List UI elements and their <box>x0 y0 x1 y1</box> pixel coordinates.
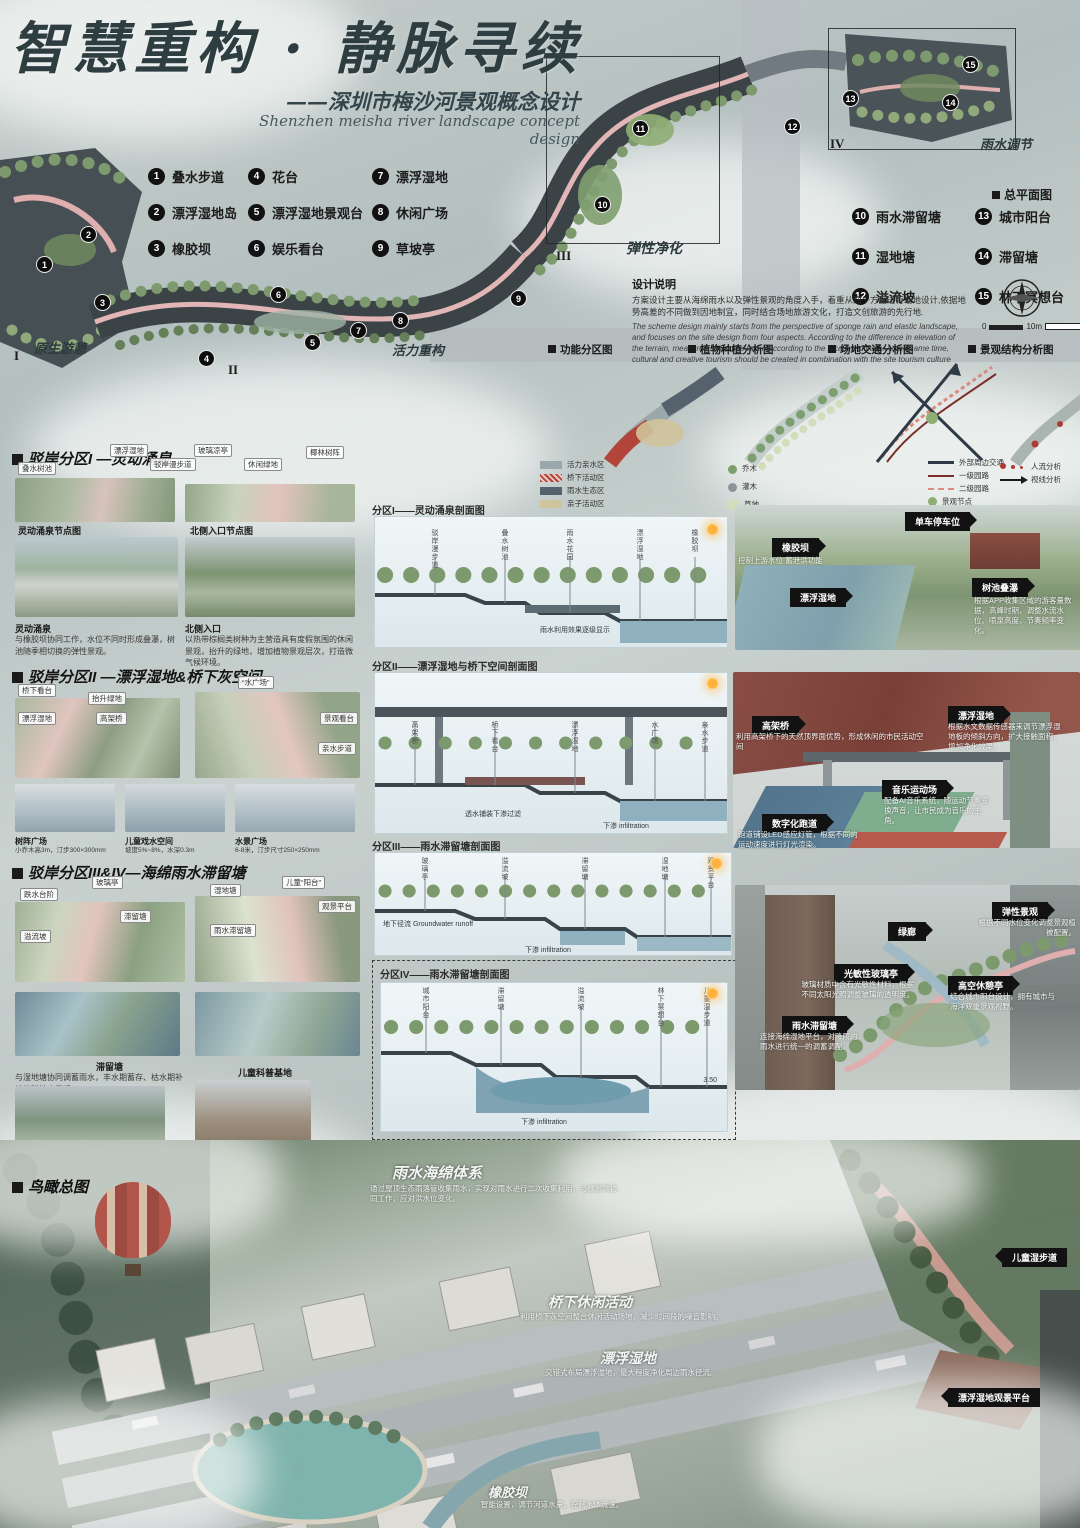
plan-marker: 2 <box>80 226 97 243</box>
design-note-cn: 方案设计主要从海绵雨水以及弹性景观的角度入手，着重从四个方面进行场地设计,依据地… <box>632 294 968 319</box>
section2-step3 <box>235 784 355 832</box>
section2-step2 <box>125 784 225 832</box>
label-green-corridor: 绿廊 <box>888 922 926 941</box>
legend-item: 7 漂浮湿地 <box>372 167 448 186</box>
callout-label: 雨水滞留塘 <box>210 924 256 937</box>
label-elastic-desc: 根据不同水位变化调整景观植被配置。 <box>976 918 1076 938</box>
legend-swatch <box>1000 479 1026 481</box>
callout-label: 桥下看台 <box>18 684 56 697</box>
label-rubber-dam: 橡胶坝 <box>772 538 819 557</box>
plan-marker: 13 <box>842 90 859 107</box>
poster-subtitle-en: Shenzhen meisha river landscape concept … <box>250 112 580 148</box>
callout-label: 椰林树阵 <box>306 446 344 459</box>
legend-swatch <box>540 461 562 469</box>
hot-air-balloon <box>95 1182 171 1278</box>
callout-label: 亲水步道 <box>318 742 356 755</box>
bridge-deck <box>803 752 1033 762</box>
water-level-label: 3.50 <box>703 1077 717 1084</box>
label-sky-rest-desc: 结合城市阳台设计，拥有城市与海洋双重景观视野。 <box>950 992 1060 1012</box>
section34-pond-render2 <box>195 992 360 1056</box>
legend-label: 橡胶坝 <box>172 239 211 258</box>
legend-label: 湿地塘 <box>876 247 915 266</box>
scale-segment <box>989 325 1023 330</box>
aerial-label-underbridge: 桥下休闲活动 <box>548 1292 632 1312</box>
legend-number: 6 <box>248 240 265 257</box>
profile2-title: 分区II——漂浮湿地与桥下空间剖面图 <box>372 658 538 673</box>
aerial-label-wetland: 漂浮湿地 <box>600 1348 656 1368</box>
design-poster: I 原生游憩 II 活力重构 III 弹性净化 IV 雨水调节 1 2 3 4 … <box>0 0 1080 1528</box>
profile-tick: 亲水步道 <box>699 721 709 753</box>
legend-number: 10 <box>852 208 869 225</box>
legend-label: 花台 <box>272 167 298 186</box>
segment-III-theme: 弹性净化 <box>626 238 682 258</box>
plan-marker: 7 <box>350 322 367 339</box>
profile4-title: 分区IV——雨水滞留塘剖面图 <box>380 966 509 981</box>
profile-note: 透水铺装下渗过滤 <box>465 809 521 819</box>
label-floating-wetland: 漂浮湿地 <box>790 588 846 607</box>
legend-swatch <box>928 488 954 490</box>
aerial-desc-wetland: 交错式布局漂浮湿地，最大程度净化周边雨水径流。 <box>545 1368 775 1378</box>
label-floating-wetland2-desc: 根据水文数据传感器来调节漂浮湿地板的倾斜方向，扩大接触面积，增加净化效果。 <box>948 722 1066 752</box>
legend-number: 13 <box>975 208 992 225</box>
photo-desc: 以热带棕榈类树种为主营造具有度假氛围的休闲景观，抬升的绿地，增加植物景观层次，打… <box>185 634 357 669</box>
legend-number: 9 <box>372 240 389 257</box>
segment-II-theme: 活力重构 <box>392 340 444 359</box>
segment-IV-numeral: IV <box>830 136 844 152</box>
legend-label: 漂浮湿地景观台 <box>272 203 363 222</box>
legend-label: 漂浮湿地岛 <box>172 203 237 222</box>
legend-swatch <box>540 500 562 508</box>
photo-title: 儿童科普基地 <box>238 1066 292 1079</box>
plan-marker: 4 <box>198 350 215 367</box>
legend-item: 6 娱乐看台 <box>248 239 324 258</box>
traffic-analysis-diagram <box>862 352 1012 472</box>
sun-icon <box>710 857 723 870</box>
callout-label: 玻璃凉亭 <box>194 444 232 457</box>
step-desc: 小乔木高3m，汀步300×300mm <box>15 846 120 855</box>
legend-swatch <box>728 483 737 492</box>
label-digital-track-desc: 跑道铺设LED感应灯管，根据不同的运动速度进行灯光渲染。 <box>738 830 858 850</box>
legend-item: 3 橡胶坝 <box>148 239 211 258</box>
legend-item: 13 城市阳台 <box>975 207 1051 226</box>
profile-tick: 林下冥想台 <box>655 987 665 1027</box>
sun-icon <box>706 677 719 690</box>
plan-marker: 12 <box>784 118 801 135</box>
section1-photo1 <box>15 537 178 617</box>
scale-bar: 0 10m 20m <box>982 322 1080 331</box>
callout-label: 湿地塘 <box>210 884 241 897</box>
profile-tick: 玻璃亭 <box>419 857 429 881</box>
square-bullet-icon <box>828 345 836 353</box>
plan-caption: 灵动涌泉节点图 <box>18 524 81 537</box>
profile-tick: 漂浮湿地 <box>569 721 579 753</box>
river-channel <box>735 565 916 650</box>
segment-II-numeral: II <box>228 362 238 378</box>
plan-marker: 10 <box>594 196 611 213</box>
label-viaduct-desc: 利用高架桥下的天然顶界面优势，形成休闲的市民活动空间 <box>736 732 926 752</box>
legend-number: 8 <box>372 204 389 221</box>
runoff-note: 地下径流 Groundwater runoff <box>383 919 473 929</box>
label-photosensitive-desc: 玻璃材质中含有光敏性材料，根据不同太阳光照调整玻璃的透明度。 <box>796 980 914 1000</box>
legend-label: 娱乐看台 <box>272 239 324 258</box>
legend-number: 11 <box>852 248 869 265</box>
section2-step1 <box>15 784 115 832</box>
profile-tick: 溢流坡 <box>499 857 509 881</box>
label-treepool-cascade: 树池叠瀑 <box>972 578 1028 597</box>
callout-label: 漂浮湿地 <box>110 444 148 457</box>
callout-label: 驳岸漫步道 <box>150 458 196 471</box>
callout-label: 休闲绿地 <box>244 458 282 471</box>
legend-label: 滞留塘 <box>999 247 1038 266</box>
section1-plan2 <box>185 484 355 522</box>
profile-tick: 桥下看台 <box>489 721 499 753</box>
legend-label: 漂浮湿地 <box>396 167 448 186</box>
sun-icon <box>706 523 719 536</box>
function-zoning-legend: 活力亲水区 桥下活动区 雨水生态区 亲子活动区 <box>540 458 605 510</box>
photo-desc: 与橡胶坝协同工作，水位不同时形成叠瀑，树池随季相切换的弹性景观。 <box>15 634 180 657</box>
profile2-panel: 高架桥 桥下看台 漂浮湿地 水广场 亲水步道 透水铺装下渗过滤 下渗 infil… <box>374 672 728 834</box>
legend-item: 4 花台 <box>248 167 298 186</box>
callout-label: 景观看台 <box>320 712 358 725</box>
segment-III-numeral: III <box>556 248 571 264</box>
analysis-header-planting: 植物种植分析图 <box>688 342 774 357</box>
legend-label: 叠水步道 <box>172 167 224 186</box>
profile-tick: 橡胶坝 <box>689 529 699 553</box>
red-court <box>849 832 1008 848</box>
legend-label: 草坡亭 <box>396 239 435 258</box>
legend-item: 11 湿地塘 <box>852 247 915 266</box>
legend-swatch <box>928 461 954 464</box>
masterplan-label: 总平面图 <box>992 186 1052 203</box>
plan-marker: 9 <box>510 290 527 307</box>
structure-legend: 人流分析 视线分析 <box>1000 460 1061 486</box>
aerial-tag-children-walk: 儿童湿步道 <box>1002 1248 1067 1267</box>
legend-swatch <box>728 465 737 474</box>
section1-plan1 <box>15 478 175 522</box>
profile-tick: 滞留塘 <box>579 857 589 881</box>
section2-plan1 <box>15 698 180 778</box>
legend-number: 4 <box>248 168 265 185</box>
legend-item: 5 漂浮湿地景观台 <box>248 203 363 222</box>
callout-label: “水广场” <box>238 676 274 689</box>
legend-number: 15 <box>975 288 992 305</box>
callout-label: 跌水台阶 <box>20 888 58 901</box>
section34-header: 驳岸分区III&IV—海绵雨水滞留塘 <box>12 862 246 883</box>
scale-segment <box>1045 323 1080 330</box>
square-bullet-icon <box>12 1182 23 1193</box>
legend-swatch <box>928 475 954 477</box>
legend-label: 休闲广场 <box>396 203 448 222</box>
red-building <box>970 533 1040 569</box>
profile-tick: 驳岸漫步道 <box>429 529 439 569</box>
profile-tick: 溢流坡 <box>575 987 585 1011</box>
legend-label: 城市阳台 <box>999 207 1051 226</box>
legend-number: 5 <box>248 204 265 221</box>
plan-marker: 3 <box>94 294 111 311</box>
legend-item: 1 叠水步道 <box>148 167 224 186</box>
legend-label: 雨水滞留塘 <box>876 207 941 226</box>
profile-tick: 滞留塘 <box>495 987 505 1011</box>
segment-IV-theme: 雨水调节 <box>980 134 1032 153</box>
legend-item: 14 滞留塘 <box>975 247 1038 266</box>
profile1-panel: 驳岸漫步道 叠水树池 雨水花园 漂浮湿地 橡胶坝 雨水利用效果逐级显示 <box>374 516 728 648</box>
function-zoning-diagram <box>590 358 740 478</box>
callout-label: 观景平台 <box>318 900 356 913</box>
legend-number: 14 <box>975 248 992 265</box>
square-bullet-icon <box>688 345 696 353</box>
step-desc: 6-8米，汀步尺寸250×250mm <box>235 846 355 855</box>
profile-tick: 叠水树池 <box>499 529 509 561</box>
square-bullet-icon <box>548 345 556 353</box>
legend-item: 9 草坡亭 <box>372 239 435 258</box>
section34-pond-render1 <box>15 992 180 1056</box>
poster-title: 智慧重构 · 静脉寻续 <box>10 4 583 85</box>
callout-label: 溢流坡 <box>20 930 51 943</box>
legend-number: 3 <box>148 240 165 257</box>
north-arrow-icon <box>1000 276 1044 320</box>
aerial-label-sponge-system: 雨水海绵体系 <box>392 1162 482 1183</box>
label-music-court-desc: 配备AI音乐系统，随运动节奏变换声音，让市民成为音乐的主角。 <box>884 796 994 826</box>
profile-tick: 城市阳台 <box>420 987 430 1019</box>
legend-swatch <box>540 487 562 495</box>
callout-label: 抬升绿地 <box>88 692 126 705</box>
legend-number: 7 <box>372 168 389 185</box>
profile-note: 雨水利用效果逐级显示 <box>540 625 610 635</box>
legend-item: 10 雨水滞留塘 <box>852 207 941 226</box>
profile-tick: 湿地塘 <box>659 857 669 881</box>
callout-label: 叠水树池 <box>18 462 56 475</box>
profile3-title: 分区III——雨水滞留塘剖面图 <box>372 838 500 853</box>
aerial-desc-dam: 智能设置，调节河道水量，控制水体流速。 <box>452 1500 652 1510</box>
profile-tick: 水广场 <box>649 721 659 745</box>
design-note-heading: 设计说明 <box>632 276 968 292</box>
analysis-header-function: 功能分区图 <box>548 342 613 357</box>
label-rubber-dam-desc: 控制上游水位 蓄泄洪功能 <box>738 556 828 566</box>
aerial-label-dam: 橡胶坝 <box>488 1482 527 1501</box>
legend-item: 8 休闲广场 <box>372 203 448 222</box>
segment-I-theme: 原生游憩 <box>34 338 86 357</box>
aerial-header: 鸟瞰总图 <box>12 1176 88 1197</box>
profile-tick: 雨水花园 <box>564 529 574 561</box>
profile-tick: 高架桥 <box>409 721 419 745</box>
plan-marker: 5 <box>304 334 321 351</box>
legend-swatch <box>540 474 562 482</box>
plan-marker: 11 <box>632 120 649 137</box>
plan-marker: 14 <box>942 94 959 111</box>
plan-marker: 8 <box>392 312 409 329</box>
label-rain-pond-desc: 连接海绵湿地平台，对降雨的雨水进行统一的调蓄调配。 <box>760 1032 860 1052</box>
square-bullet-icon <box>992 191 1000 199</box>
aerial-desc-underbridge: 利用桥下灰空间整合休闲活动场地，减少时间段的噪音影响。 <box>520 1312 740 1322</box>
callout-label: 玻璃亭 <box>92 876 123 889</box>
segment-IV-frame <box>828 28 1016 150</box>
plan-marker: 1 <box>36 256 53 273</box>
callout-label: 儿童“阳台” <box>282 876 325 889</box>
aerial-tag-wetland-platform: 漂浮湿地观景平台 <box>948 1388 1040 1407</box>
plan-caption: 北侧入口节点图 <box>190 524 253 537</box>
profile4-panel: 城市阳台 滞留塘 溢流坡 林下冥想台 儿童湿步道 3.50 下渗 infiltr… <box>380 982 728 1132</box>
aerial-desc-sponge-system: 通过屋顶生态雨落管收集雨水，实现对雨水进行二次收集利用，与橡胶坝协同工作，应对洪… <box>370 1184 620 1204</box>
section2-plan2 <box>195 692 360 778</box>
profile3-panel: 玻璃亭 溢流坡 滞留塘 湿地塘 观景平台 地下径流 Groundwater ru… <box>374 852 732 956</box>
sun-icon <box>706 987 719 1000</box>
callout-label: 漂浮湿地 <box>18 712 56 725</box>
step-desc: 坡度5%~8%，水深0.3m <box>125 846 230 855</box>
label-treepool-desc: 根据APP收集区域的游客量数据，高峰时期，调整水流水位、喷泉高度、节奏频率变化。 <box>974 596 1076 637</box>
plan-marker: 15 <box>962 56 979 73</box>
infiltration-note: 下渗 infiltration <box>525 945 571 955</box>
profile-tick: 漂浮湿地 <box>634 529 644 561</box>
traffic-legend: 外部周边交通 一级园路 二级园路 景观节点 <box>928 456 1004 508</box>
square-bullet-icon <box>12 672 23 683</box>
legend-swatch <box>1000 460 1026 474</box>
infiltration-note: 下渗 infiltration <box>521 1117 567 1127</box>
scale-ten: 10m <box>1026 322 1042 331</box>
scale-zero: 0 <box>982 322 986 331</box>
label-bike-parking: 单车停车位 <box>905 512 970 531</box>
plan-marker: 6 <box>270 286 287 303</box>
segment-I-numeral: I <box>14 348 19 364</box>
square-bullet-icon <box>12 868 23 879</box>
legend-number: 2 <box>148 204 165 221</box>
section1-photo2 <box>185 537 355 617</box>
legend-number: 1 <box>148 168 165 185</box>
callout-label: 高架桥 <box>96 712 127 725</box>
profile1-title: 分区I——灵动涌泉剖面图 <box>372 502 485 517</box>
legend-item: 2 漂浮湿地岛 <box>148 203 237 222</box>
callout-label: 滞留塘 <box>120 910 151 923</box>
infiltration-note: 下渗 infiltration <box>603 821 649 831</box>
